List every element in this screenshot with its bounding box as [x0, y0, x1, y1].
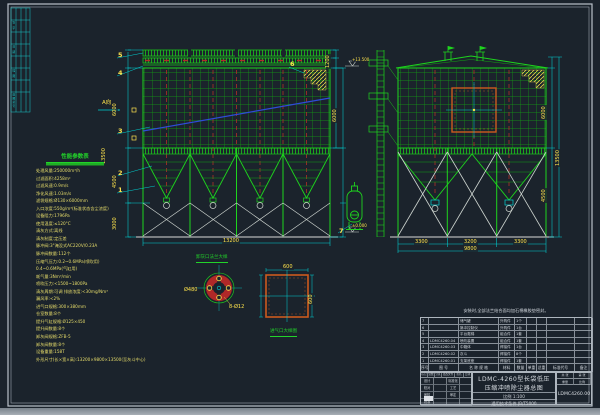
bom-cell-name: 储气罐: [459, 318, 499, 325]
bom-cell-code: LDMC4260.02: [429, 351, 459, 358]
sv-cross-bracing: [398, 152, 546, 236]
bom-cell-unit-weight: [527, 338, 537, 345]
bom-cell-material: 焊接件: [499, 351, 515, 358]
param-row: 清灰周期:可调 排放浓度:<30mg/Nm³: [36, 288, 146, 296]
dim-sv-seg2: 3200: [463, 240, 478, 245]
param-row: 卸灰阀数量:8个: [36, 341, 146, 349]
bom-row: 2 LDMC4260.02 灰斗 焊接件 8个: [421, 351, 591, 358]
bom-cell-total-weight: [537, 344, 547, 351]
strip-label: 底图总号: [12, 93, 15, 108]
bom-cell-material: 组合件: [499, 331, 515, 338]
balloon-6: 6: [290, 61, 295, 68]
bom-cell-qty: 8个: [515, 351, 527, 358]
bom-cell-no: 5: [421, 331, 429, 338]
sig-label: 校对: [421, 385, 434, 392]
bom-cell-no: 3: [421, 344, 429, 351]
balloon-5: 5: [118, 52, 123, 59]
cad-drawing-canvas: 签 字 日 期 描 图 底图总号 1 2 3 4 5 6 7 A向 13200 …: [0, 0, 600, 415]
bom-row: 5 平台爬梯 组合件 1套: [421, 331, 591, 338]
bom-cell-standard: [547, 318, 575, 325]
param-row: 净化风速:1.03m/s: [36, 190, 146, 198]
bom-cell-remark: [575, 318, 593, 325]
sig-label: 设计: [421, 378, 434, 385]
drawing-title-line1: LDMC-4260型长袋低压: [473, 374, 555, 383]
bom-cell-no: 7: [421, 318, 429, 325]
param-row: 压缩气压力:0.2~0.6MPa(喷吹用): [36, 258, 146, 266]
bom-row: 7 储气罐 外购件 1个: [421, 318, 591, 325]
bom-cell-qty: 1套: [515, 358, 527, 365]
bom-cell-no: 2: [421, 351, 429, 358]
param-row: 清灰制度:定压差: [36, 235, 146, 243]
param-row: 过滤面积:4258m²: [36, 175, 146, 183]
sv-roof: [396, 56, 548, 68]
bom-cell-code: [429, 318, 459, 325]
bom-cell-code: LDMC4260.04: [429, 338, 459, 345]
bom-row: 4 LDMC4260.04 喷吹装置 组合件 1套: [421, 338, 591, 345]
bom-cell-code: LDMC4260.03: [429, 344, 459, 351]
bom-cell-total-weight: [537, 325, 547, 332]
param-row: 外形尺寸(长×宽×高):13200×9800×13500(至灰斗中心): [36, 356, 146, 364]
strip-label: 描 图: [12, 69, 15, 79]
dim-circle-diameter: Ø480: [183, 288, 198, 293]
detail-circle-title: 卸灰口法兰大样: [196, 256, 228, 263]
bom-rows: 7 储气罐 外购件 1个 6 脉冲控制仪 外购件 1台 5: [421, 318, 591, 364]
dim-fv-casing-height: 6000: [113, 102, 118, 117]
param-row: 漏风率:<2%: [36, 295, 146, 303]
bom-cell-code: LDMC4260.01: [429, 358, 459, 365]
fv-section-markers: [132, 108, 136, 140]
param-row: 仓室数量:8个: [36, 310, 146, 318]
param-row: 清灰方式:离线: [36, 227, 146, 235]
a-direction-label: A向: [101, 101, 112, 107]
bom-cell-unit-weight: [527, 331, 537, 338]
bom-cell-no: 4: [421, 338, 429, 345]
bom-cell-name: 灰斗: [459, 351, 499, 358]
bom-cell-qty: 1套: [515, 331, 527, 338]
drawing-title-line2: 压缩冲喷除尘器总图: [473, 383, 555, 392]
param-row: 脉冲阀数量:112个: [36, 250, 146, 258]
bom-cell-material: 组合件: [499, 338, 515, 345]
detail-square-title: 进气口大样图: [270, 330, 297, 337]
bom-cell-code: [429, 331, 459, 338]
sig-label: [447, 399, 460, 406]
bom-cell-total-weight: [537, 318, 547, 325]
dim-square-top: 600: [282, 265, 294, 270]
bom-table: 7 储气罐 外购件 1个 6 脉冲控制仪 外购件 1台 5: [420, 317, 592, 373]
param-table-title: 性能参数表: [46, 155, 104, 163]
sv-discharge-valves: [431, 200, 513, 212]
param-row: 脉冲阀:3"淹没式AC220V/0.23A: [36, 242, 146, 250]
param-row: 进气口规格:300×380mm: [36, 303, 146, 311]
dim-sv-seg3: 3300: [513, 240, 528, 245]
bom-cell-material: 外购件: [499, 318, 515, 325]
bom-cell-unit-weight: [527, 318, 537, 325]
bom-row: 3 LDMC4260.03 中箱体 焊接件 1台: [421, 344, 591, 351]
bom-cell-remark: [575, 338, 593, 345]
bom-cell-total-weight: [537, 331, 547, 338]
bom-cell-name: 中箱体: [459, 344, 499, 351]
param-row: 喷吹压力:<1500~1800Pa: [36, 280, 146, 288]
bom-cell-material: 焊接件: [499, 358, 515, 365]
dim-fv-right: 6000: [333, 108, 338, 123]
bom-cell-remark: [575, 344, 593, 351]
title-cell: LDMC-4260型长袋低压 压缩冲喷除尘器总图 比例 1:100 通用技术条件…: [472, 371, 556, 405]
dim-sv-seg1: 3300: [414, 240, 429, 245]
bom-cell-no: 1: [421, 358, 429, 365]
param-row: 处理风量:250000m³/h: [36, 167, 146, 175]
dim-sv-total: 9800: [463, 247, 478, 252]
strip-label: 日 期: [12, 45, 15, 55]
bom-cell-standard: [547, 325, 575, 332]
bom-cell-material: 焊接件: [499, 344, 515, 351]
param-row: 卸灰阀规格:ZFB-5: [36, 333, 146, 341]
bom-cell-name: 支架底座: [459, 358, 499, 365]
balloon-4: 4: [118, 70, 123, 77]
scale-cell: 比例 1:100: [473, 392, 555, 399]
bom-cell-unit-weight: [527, 358, 537, 365]
dim-elevation-top: +13.500: [352, 58, 369, 62]
bom-cell-total-weight: [537, 338, 547, 345]
param-row: 滤袋规格:Ø130×6000mm: [36, 197, 146, 205]
dim-square-right: 600: [309, 293, 314, 305]
sig-label: 工艺: [447, 385, 460, 392]
dim-elevation-zero: ±0.000: [352, 224, 367, 228]
detail-inlet-square: [259, 268, 315, 322]
bom-cell-remark: [575, 351, 593, 358]
window-bottom-edge: [0, 408, 600, 415]
bom-cell-name: 平台爬梯: [459, 331, 499, 338]
param-row: 提升气缸规格:Ø125×450: [36, 318, 146, 326]
balloon-3: 3: [118, 128, 123, 135]
bom-cell-qty: 1台: [515, 344, 527, 351]
bom-cell-unit-weight: [527, 344, 537, 351]
bom-cell-qty: 1个: [515, 318, 527, 325]
bom-cell-standard: [547, 344, 575, 351]
param-row: 设备重量:158T: [36, 348, 146, 356]
bom-cell-standard: [547, 331, 575, 338]
bom-cell-total-weight: [537, 351, 547, 358]
bom-cell-name: 脉冲控制仪: [459, 325, 499, 332]
sv-ladder-platforms: [369, 50, 398, 237]
bom-row: 6 脉冲控制仪 外购件 1台: [421, 325, 591, 332]
approval-stamp: [424, 396, 433, 401]
sv-hoppers: [398, 154, 546, 200]
strip-label: 签 字: [12, 21, 15, 31]
sv-roof-valves: [443, 46, 487, 61]
param-row: 过滤风速:0.9m/s: [36, 182, 146, 190]
param-row: 提升阀数量:8个: [36, 325, 146, 333]
bom-cell-name: 喷吹装置: [459, 338, 499, 345]
bom-cell-qty: 1台: [515, 325, 527, 332]
dim-circle-holes: 8-Ø12: [228, 305, 245, 310]
dim-sv-hopper-height: 4500: [542, 188, 547, 203]
sv-hopper-band: [398, 148, 546, 154]
param-row: 耗气量:3Nm³/min: [36, 273, 146, 281]
bom-cell-remark: [575, 358, 593, 365]
sv-legs: [398, 148, 546, 237]
balloon-7: 7: [339, 228, 344, 235]
standard-cell: 通用技术条件 JB/T5000: [473, 399, 555, 407]
bom-row: 1 LDMC4260.01 支架底座 焊接件 1套: [421, 358, 591, 365]
param-row: 设备阻力:1796Pa: [36, 212, 146, 220]
sv-casing-grid: [398, 68, 546, 148]
drawing-number: LDMC4260.00: [557, 385, 591, 404]
bom-cell-unit-weight: [527, 351, 537, 358]
dim-fv-total: 13200: [222, 239, 240, 244]
dim-fv-roof: 1200: [326, 54, 331, 69]
bom-note: 安装时,全部法兰结合面均加石棉橡胶垫密封。: [420, 309, 592, 313]
param-row: 使用温度:≤120°C: [36, 220, 146, 228]
param-table: 处理风量:250000m³/h过滤面积:4258m²过滤风速:0.9m/s净化风…: [36, 167, 146, 363]
dim-sv-total-height: 13500: [556, 149, 561, 167]
bom-cell-standard: [547, 351, 575, 358]
bom-cell-remark: [575, 325, 593, 332]
dim-sv-casing-height: 6000: [542, 105, 547, 120]
fv-legs: [143, 148, 330, 237]
sig-label: 审定: [447, 392, 460, 399]
bom-cell-total-weight: [537, 358, 547, 365]
bom-cell-qty: 1套: [515, 338, 527, 345]
side-view: [369, 46, 562, 253]
param-row: 入口浓度:550g/m³(标准状态含尘浓度): [36, 205, 146, 213]
bom-cell-remark: [575, 331, 593, 338]
bom-cell-standard: [547, 358, 575, 365]
title-right-block: 共 张 第 张 重量 比例 LDMC4260.00: [556, 371, 592, 405]
bom-cell-unit-weight: [527, 325, 537, 332]
sig-label: 标准化: [447, 378, 460, 385]
bom-cell-material: 外购件: [499, 325, 515, 332]
bom-cell-code: [429, 325, 459, 332]
bom-cell-no: 6: [421, 325, 429, 332]
bom-cell-standard: [547, 338, 575, 345]
param-row: 0.4~0.6MPa(气缸用): [36, 265, 146, 273]
